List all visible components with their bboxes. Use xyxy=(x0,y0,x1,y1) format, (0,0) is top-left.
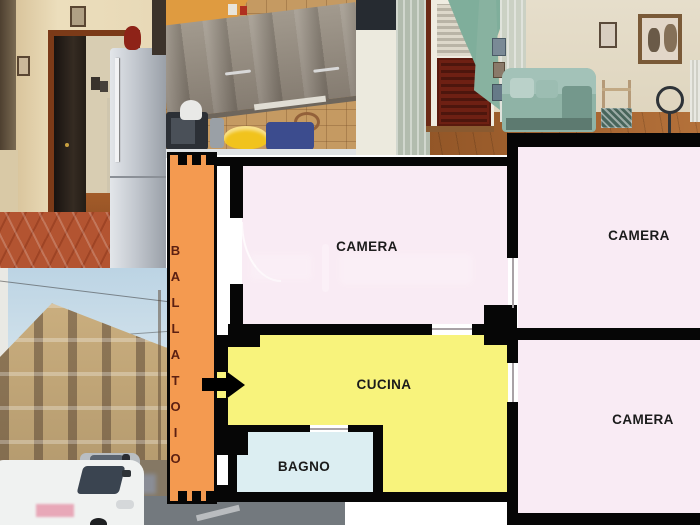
tv xyxy=(356,0,398,30)
blurred-plate xyxy=(36,504,74,517)
fridge-handle xyxy=(115,58,119,162)
curtain xyxy=(396,0,430,157)
van-wheel xyxy=(90,518,107,525)
refrigerator xyxy=(110,48,166,270)
door-knob xyxy=(65,143,69,147)
crenellation-tooth xyxy=(192,155,201,165)
building-corner xyxy=(158,290,161,460)
picture-frame xyxy=(91,77,100,90)
microwave-door xyxy=(171,118,195,144)
wall xyxy=(517,328,700,340)
window-opening xyxy=(217,455,228,485)
kettle xyxy=(180,100,202,120)
wall xyxy=(228,324,432,335)
sofa-base xyxy=(506,118,592,130)
wall xyxy=(373,425,383,492)
wall xyxy=(217,157,508,166)
pillow xyxy=(510,78,534,98)
white-van xyxy=(0,460,144,525)
crenellation-tooth xyxy=(192,491,201,501)
artwork-figure xyxy=(664,24,677,52)
room-label-cucina: CUCINA xyxy=(319,377,449,393)
watermark-shape xyxy=(340,254,472,284)
pillow xyxy=(536,80,558,98)
watermark xyxy=(250,238,485,300)
threshold xyxy=(426,126,494,132)
wall xyxy=(228,432,237,501)
wall xyxy=(472,324,484,335)
chair-cushion xyxy=(601,108,632,128)
door-threshold-line xyxy=(512,363,514,402)
crenellation-tooth xyxy=(178,491,187,501)
photo-hallway xyxy=(0,0,166,270)
wall xyxy=(230,166,243,218)
wall xyxy=(217,492,517,502)
can xyxy=(210,118,224,148)
wall xyxy=(507,513,700,525)
large-picture-frame xyxy=(638,14,682,64)
picture-frame xyxy=(17,56,30,76)
door-threshold-line xyxy=(310,428,348,430)
wall xyxy=(507,147,518,258)
wardrobe xyxy=(356,28,400,157)
door-threshold-line xyxy=(512,258,514,308)
wall xyxy=(217,335,260,347)
fridge-door-split xyxy=(110,176,166,178)
picture-frame xyxy=(492,38,506,56)
room-label-bagno: BAGNO xyxy=(239,459,369,475)
dark-corner xyxy=(152,0,166,55)
room-label-ballatoio: BALLATOIO xyxy=(168,250,216,470)
wall xyxy=(228,425,310,432)
chair xyxy=(600,80,634,136)
plan-background xyxy=(345,501,517,525)
van-mirror xyxy=(122,470,131,477)
room-label-camera: CAMERA xyxy=(574,228,700,244)
decor-item xyxy=(228,4,237,15)
decor-item xyxy=(240,6,247,15)
picture-frame xyxy=(70,6,86,27)
curtain-folds xyxy=(396,0,430,157)
wall xyxy=(507,340,518,363)
photo-kitchen xyxy=(166,0,356,158)
ornament xyxy=(124,26,141,50)
picture-frame xyxy=(100,81,108,92)
van-windshield xyxy=(77,466,126,494)
radiator xyxy=(690,60,700,122)
artwork-figure xyxy=(648,28,660,52)
van-headlight xyxy=(116,500,134,509)
wall xyxy=(217,398,228,432)
entrance-arrow-head xyxy=(226,371,245,399)
watermark-shape xyxy=(322,244,329,292)
crenellation-tooth xyxy=(178,155,187,165)
blue-container xyxy=(266,122,314,150)
room-label-camera: CAMERA xyxy=(578,412,700,428)
cushion-pattern xyxy=(601,108,632,128)
crenellation-tooth xyxy=(206,491,215,501)
chair-bar xyxy=(602,88,631,91)
listing-collage: BALLATOIO CAMERA CAMERA CAMERA CUCINA BA… xyxy=(0,0,700,525)
wall xyxy=(507,133,700,147)
entrance-arrow xyxy=(202,378,228,391)
watermark-shape xyxy=(250,254,312,280)
yellow-bowl xyxy=(224,126,268,149)
picture-frame xyxy=(599,22,617,48)
crenellation-tooth xyxy=(206,155,215,165)
wall-pillar xyxy=(484,305,517,345)
sofa xyxy=(502,68,596,132)
door-threshold-line xyxy=(432,328,472,330)
magazine-rack xyxy=(656,86,684,114)
